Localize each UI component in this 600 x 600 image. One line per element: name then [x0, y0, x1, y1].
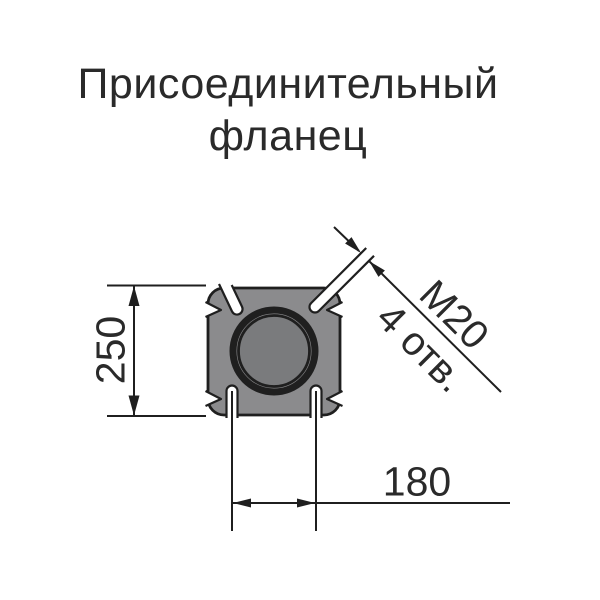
dim-180-value: 180 — [383, 459, 451, 506]
dim-250-arrow-up-icon — [129, 286, 140, 306]
bore-inner-circle — [239, 316, 310, 387]
dim-180-arrow-left-icon — [233, 499, 251, 508]
dim-250-value: 250 — [88, 316, 135, 384]
page-title: Присоединительный фланец — [0, 58, 576, 162]
dim-180-arrow-right-icon — [297, 499, 315, 508]
page-title-line2: фланец — [0, 110, 576, 162]
drawing-page: Присоединительный фланец 250 180 М20 4 о… — [0, 0, 600, 600]
dim-250-arrow-down-icon — [129, 396, 140, 416]
page-title-line1: Присоединительный — [0, 58, 576, 110]
